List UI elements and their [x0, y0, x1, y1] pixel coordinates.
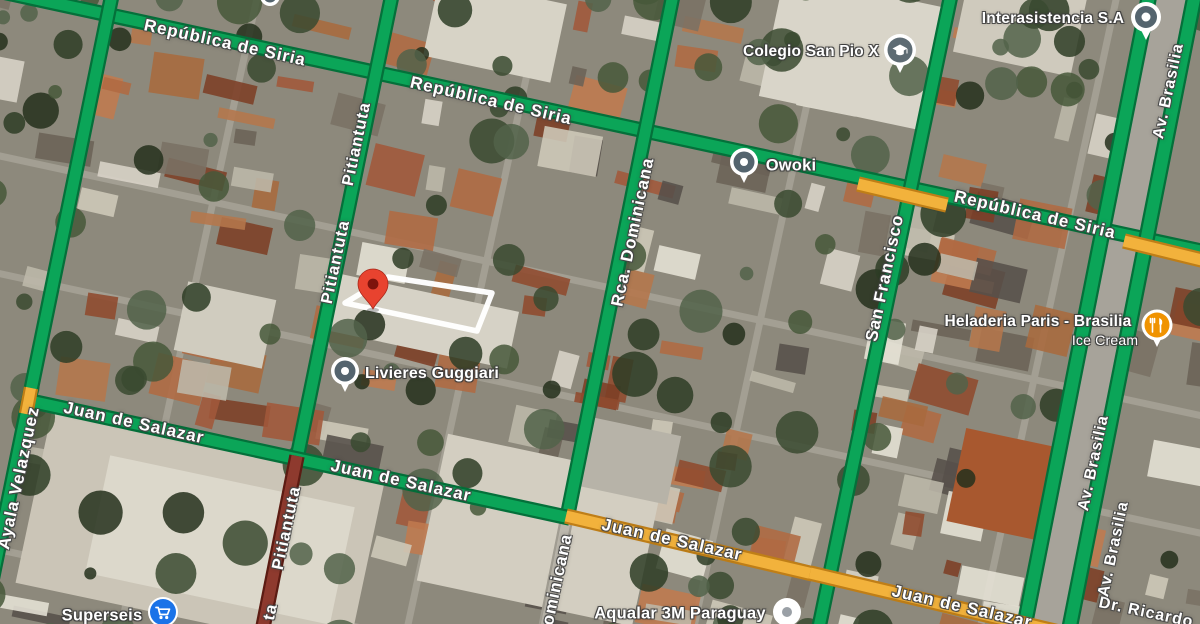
poi-label-heladeria[interactable]: Heladeria Paris - Brasilia — [945, 313, 1132, 331]
poi-label-superseis[interactable]: Superseis — [62, 607, 143, 624]
poi-label-colegio-san-pio-x[interactable]: Colegio San Pio X — [743, 43, 879, 61]
poi-label-aqualar[interactable]: Aqualar 3M Paraguay — [594, 605, 766, 624]
map-canvas[interactable]: República de Siria República de Siria Re… — [0, 0, 1200, 624]
poi-label-interasistencia[interactable]: Interasistencia S.A — [982, 10, 1125, 28]
street-label-pitiantuta-partial: ta — [260, 602, 282, 622]
poi-label-livieres-guggiari[interactable]: Livieres Guggiari — [365, 365, 499, 383]
poi-label-heladeria-subtitle: Ice Cream — [1072, 332, 1138, 348]
poi-label-owoki[interactable]: Owoki — [766, 157, 817, 176]
